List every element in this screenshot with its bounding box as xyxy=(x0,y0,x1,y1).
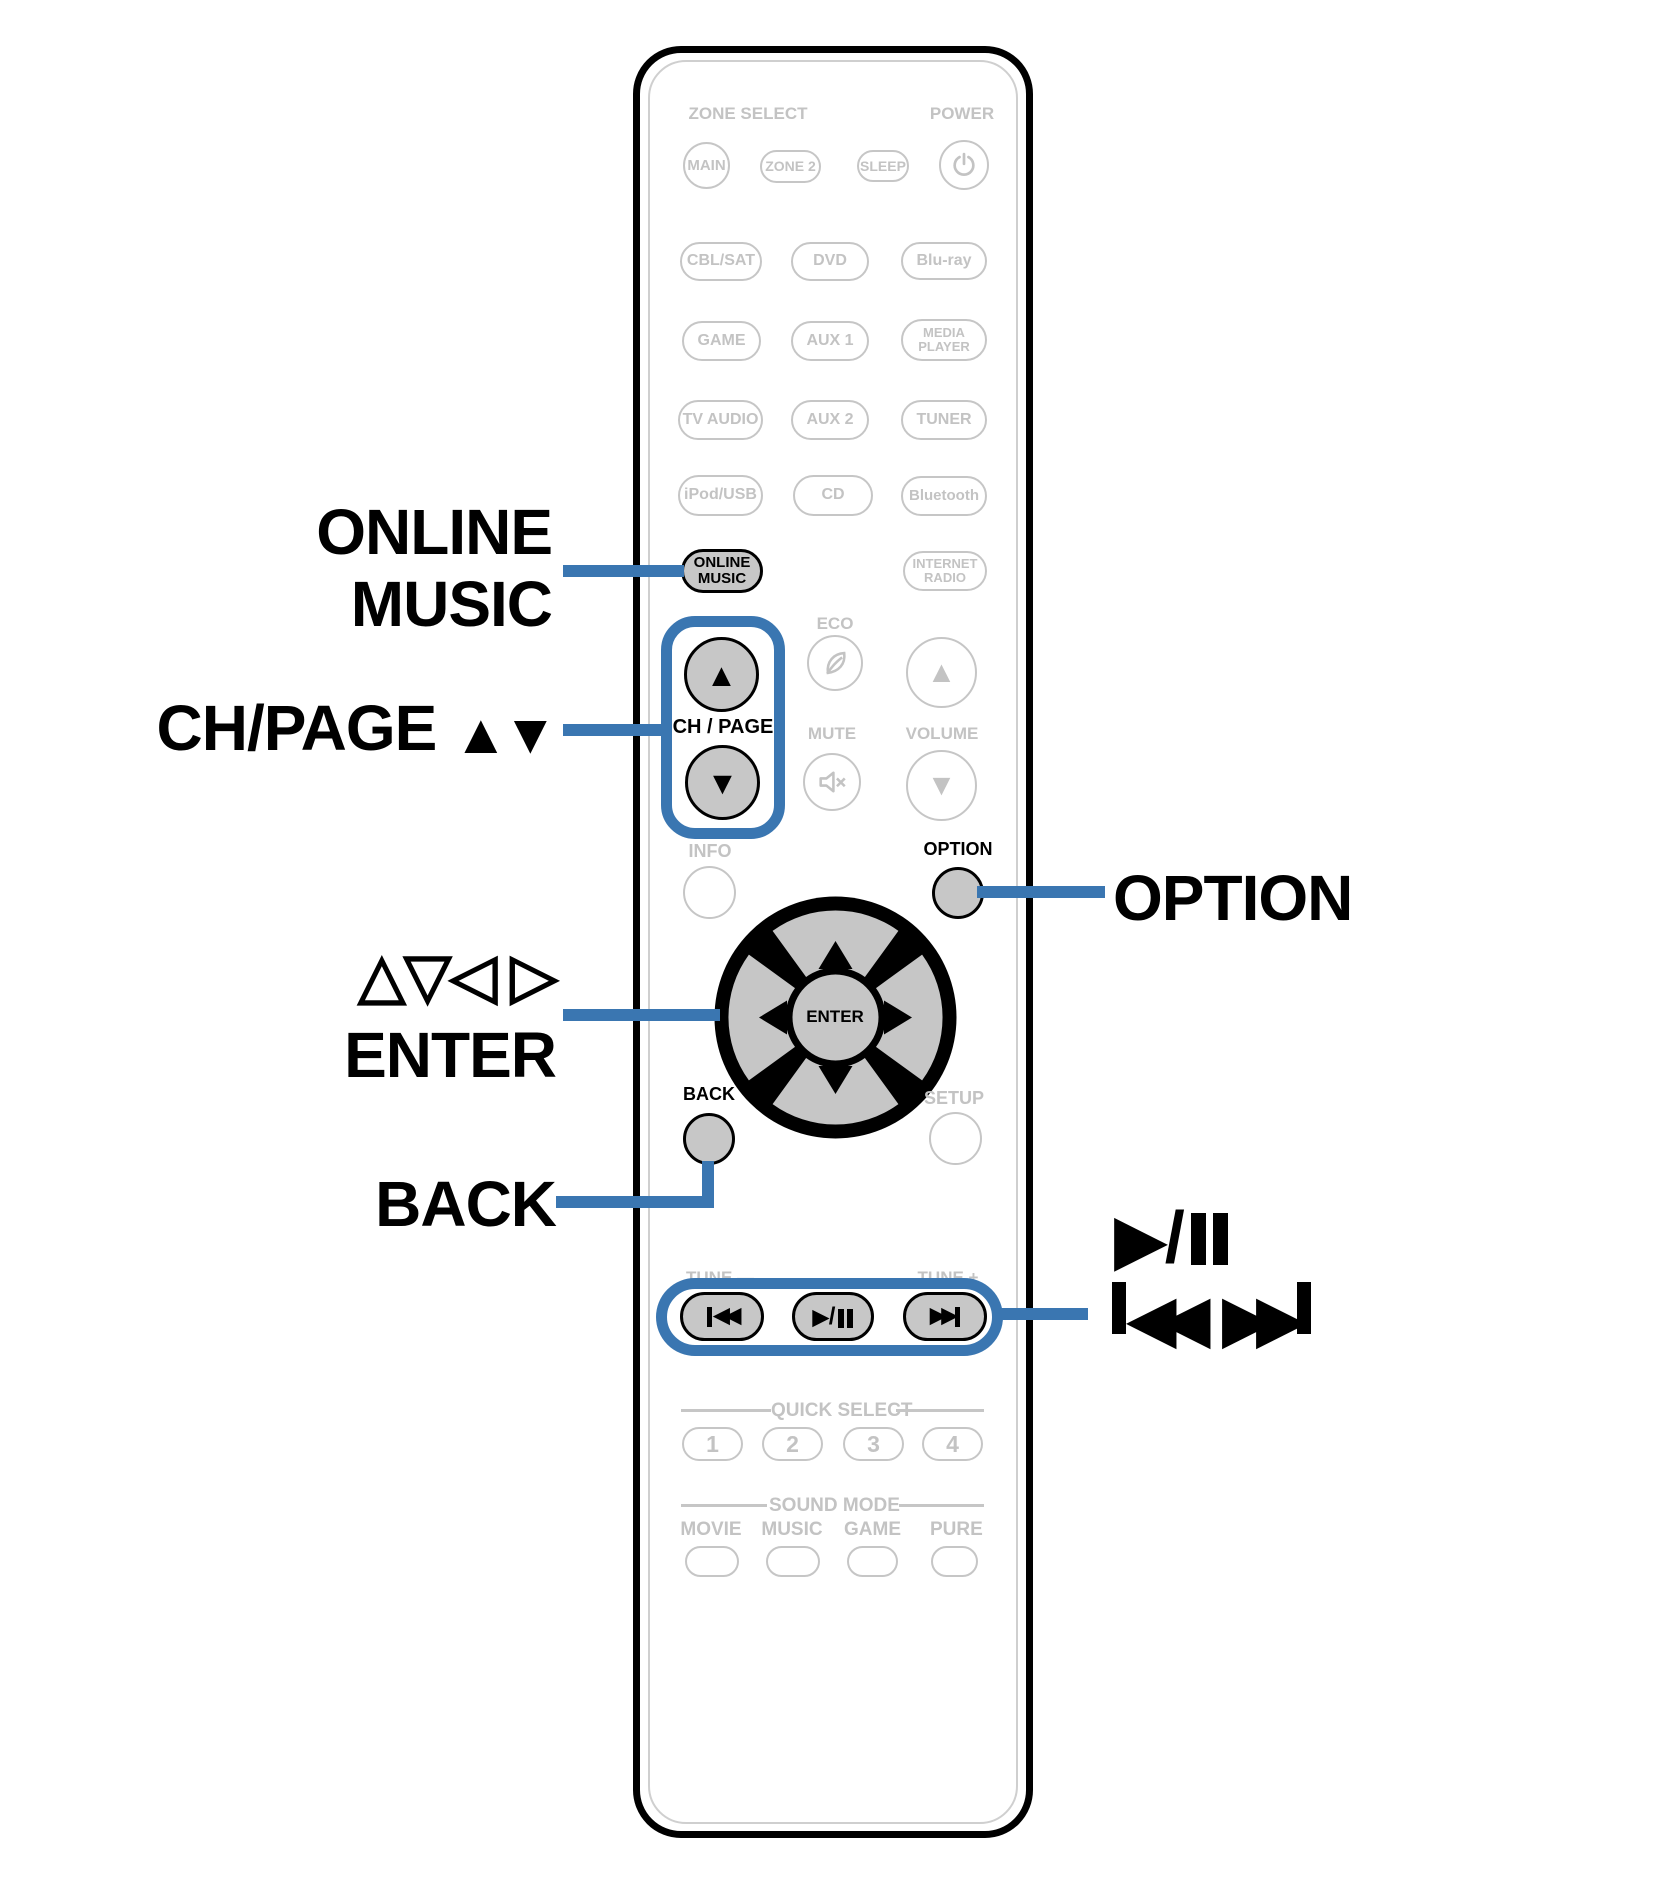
power-label: POWER xyxy=(928,104,996,124)
zone2-button[interactable]: ZONE 2 xyxy=(760,150,821,183)
skip-back-bar-icon xyxy=(1112,1282,1126,1334)
skip-forward-callout-glyph: ▶▶ xyxy=(1223,1285,1291,1354)
eco-button[interactable] xyxy=(807,635,863,691)
sound-mode-movie-button[interactable] xyxy=(685,1546,739,1577)
pause-bars-icon xyxy=(1184,1198,1228,1270)
volume-down-button[interactable]: ▼ xyxy=(906,750,977,821)
source-bluetooth-button[interactable]: Bluetooth xyxy=(901,476,987,516)
option-button-label: OPTION xyxy=(922,839,994,860)
online-music-callout: ONLINE MUSIC xyxy=(152,496,552,640)
sound-mode-label: SOUND MODE xyxy=(769,1495,895,1517)
volume-down-icon: ▼ xyxy=(927,771,957,801)
sound-mode-pure-button[interactable] xyxy=(931,1546,978,1577)
volume-up-button[interactable]: ▲ xyxy=(906,637,977,708)
eco-leaf-icon xyxy=(818,646,852,680)
ch-page-callout-arrows: ▲▼ xyxy=(453,702,552,765)
zone-select-label: ZONE SELECT xyxy=(688,104,808,124)
sound-mode-rule-left xyxy=(681,1504,767,1507)
power-icon xyxy=(950,151,978,179)
transport-highlight-box xyxy=(656,1278,1003,1356)
quick-select-rule-left xyxy=(681,1409,771,1412)
enter-button[interactable]: ENTER xyxy=(785,1002,885,1032)
source-media-player-button[interactable]: MEDIA PLAYER xyxy=(901,319,987,361)
cursor-enter-callout: △▽◁ ▷ ENTER xyxy=(200,938,556,1094)
back-button-label: BACK xyxy=(682,1084,736,1105)
sound-mode-music-label: MUSIC xyxy=(761,1519,823,1541)
source-cbl-sat-button[interactable]: CBL/SAT xyxy=(680,242,762,281)
quick-select-2-button[interactable]: 2 xyxy=(762,1427,823,1461)
mute-label: MUTE xyxy=(799,724,865,744)
power-button[interactable] xyxy=(939,140,989,190)
back-callout: BACK xyxy=(300,1168,556,1240)
skip-forward-bar-icon xyxy=(1297,1282,1311,1334)
mute-icon xyxy=(815,765,849,799)
volume-label: VOLUME xyxy=(902,724,982,744)
callout-line-option xyxy=(977,886,1105,898)
play-pause-callout: ▶/ xyxy=(1115,1198,1455,1276)
source-aux2-button[interactable]: AUX 2 xyxy=(791,400,869,440)
ch-page-callout: CH/PAGE ▲▼ xyxy=(100,692,552,770)
callout-line-enter xyxy=(563,1009,720,1021)
source-tv-audio-button[interactable]: TV AUDIO xyxy=(678,400,763,440)
enter-callout: ENTER xyxy=(200,1016,556,1094)
setup-button[interactable] xyxy=(929,1112,982,1165)
option-callout: OPTION xyxy=(1113,862,1453,934)
zone-main-button[interactable]: MAIN xyxy=(683,142,730,189)
online-music-callout-line2: MUSIC xyxy=(152,568,552,640)
online-music-button[interactable]: ONLINE MUSIC xyxy=(681,549,763,593)
source-game-button[interactable]: GAME xyxy=(682,321,761,361)
source-tuner-button[interactable]: TUNER xyxy=(901,400,987,440)
sound-mode-rule-right xyxy=(899,1504,984,1507)
callout-line-back-horizontal xyxy=(556,1196,714,1208)
source-dvd-button[interactable]: DVD xyxy=(791,242,869,281)
mute-button[interactable] xyxy=(803,753,861,811)
sound-mode-pure-label: PURE xyxy=(930,1519,980,1541)
quick-select-label: QUICK SELECT xyxy=(771,1400,895,1422)
sound-mode-game-label: GAME xyxy=(844,1519,900,1541)
sound-mode-music-button[interactable] xyxy=(766,1546,820,1577)
callout-line-transport xyxy=(997,1308,1088,1320)
skip-callout: ◀◀ ▶▶ xyxy=(1112,1282,1472,1356)
quick-select-4-button[interactable]: 4 xyxy=(922,1427,983,1461)
callout-line-back-vertical xyxy=(702,1161,714,1208)
eco-label: ECO xyxy=(806,614,864,634)
quick-select-3-button[interactable]: 3 xyxy=(843,1427,904,1461)
quick-select-rule-right xyxy=(896,1409,984,1412)
volume-up-icon: ▲ xyxy=(927,658,957,688)
ch-page-highlight-box xyxy=(661,616,785,839)
source-cd-button[interactable]: CD xyxy=(793,475,873,516)
setup-label: SETUP xyxy=(918,1088,990,1109)
sound-mode-game-button[interactable] xyxy=(847,1546,898,1577)
quick-select-1-button[interactable]: 1 xyxy=(682,1427,743,1461)
cursor-callout-triangles: △▽◁ ▷ xyxy=(200,938,556,1016)
source-bluray-button[interactable]: Blu-ray xyxy=(901,242,987,280)
sleep-button[interactable]: SLEEP xyxy=(857,150,909,182)
source-ipod-usb-button[interactable]: iPod/USB xyxy=(678,475,763,516)
online-music-callout-line1: ONLINE xyxy=(152,496,552,568)
sound-mode-movie-label: MOVIE xyxy=(680,1519,742,1541)
callout-line-ch-page xyxy=(563,724,664,736)
source-aux1-button[interactable]: AUX 1 xyxy=(791,321,869,361)
play-callout-glyph: ▶ xyxy=(1115,1202,1165,1276)
callout-line-online-music xyxy=(563,565,684,577)
internet-radio-button[interactable]: INTERNET RADIO xyxy=(903,551,987,591)
info-label: INFO xyxy=(684,841,736,862)
skip-back-callout-glyph: ◀◀ xyxy=(1128,1285,1196,1354)
remote-diagram: ZONE SELECT POWER MAIN ZONE 2 SLEEP CBL/… xyxy=(0,0,1665,1878)
back-button[interactable] xyxy=(683,1113,735,1165)
